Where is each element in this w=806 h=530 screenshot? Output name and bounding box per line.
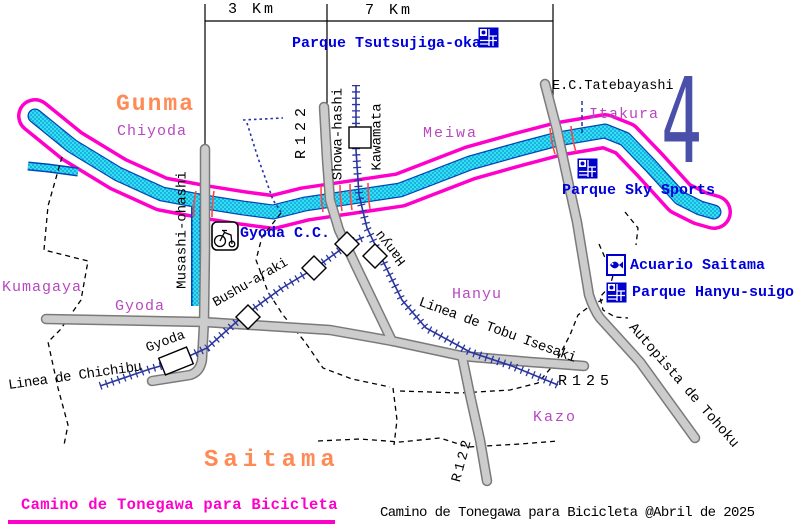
park-icon [478,27,499,53]
poi-acuario-saitama: Acuario Saitama [630,258,765,274]
landmark-number-4: 4 [661,73,702,170]
poi-parque-sky-sports: Parque Sky Sports [562,183,715,199]
aquarium-icon [606,254,626,281]
area-chiyoda: Chiyoda [117,124,187,140]
park-icon [606,282,627,308]
map-canvas: 3 Km 7 Km Parque Tsutsujiga-oka E.C.Tate… [0,0,806,530]
area-meiwa: Meiwa [423,126,478,142]
bridge-label-musashi-ohashi: Musashi-ohashi [176,171,191,289]
area-gyoda: Gyoda [115,299,165,315]
poi-tatebayashi: E.C.Tatebayashi [552,80,674,94]
region-saitama: Saitama [204,448,340,473]
poi-parque-hanyu-suigo: Parque Hanyu-suigo [632,285,794,301]
area-kumagaya: Kumagaya [2,280,82,296]
map-credit: Camino de Tonegawa para Bicicleta @Abril… [380,506,754,521]
bicycle-icon [211,221,239,256]
park-icon [577,158,598,184]
bridge-label-showa-hashi: Showa-hashi [332,88,347,180]
road-label-r122-north: R122 [294,103,310,159]
area-itakura: Itakura [589,107,659,123]
road-label-r125: R125 [558,374,614,390]
poi-parque-tsutsujigaoka: Parque Tsutsujiga-oka [292,36,481,52]
scale-label-7km: 7 Km [365,3,413,19]
area-hanyu: Hanyu [452,287,502,303]
map-title: Camino de Tonegawa para Bicicleta [21,497,338,513]
poi-gyoda-cc: Gyoda C.C. [240,226,330,242]
scale-label-3km: 3 Km [228,2,276,18]
region-gunma: Gunma [116,92,195,116]
area-kazo: Kazo [533,410,577,426]
station-label-kawamata: Kawamata [371,103,386,170]
title-underline [8,520,335,524]
